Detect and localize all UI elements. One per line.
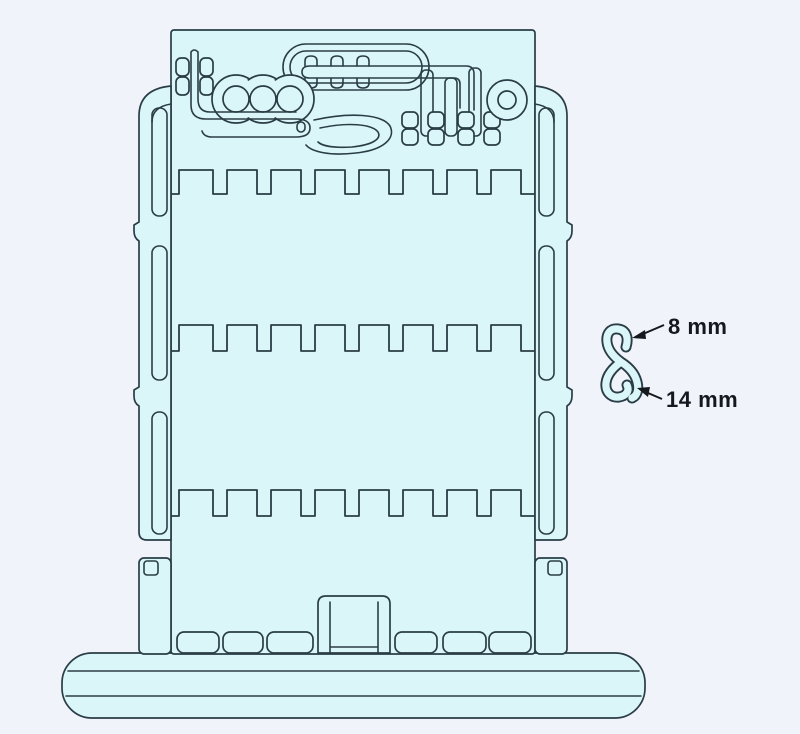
left-side-rail: [134, 86, 171, 654]
rack-assembly-diagram: 8 mm 14 mm: [0, 0, 800, 734]
annotation-14mm: 14 mm: [637, 387, 738, 412]
leader-line-8mm: [643, 325, 664, 334]
right-side-rail: [535, 86, 572, 654]
base-slab: [62, 653, 645, 718]
leader-line-14mm: [648, 393, 662, 399]
washer-ring: [487, 80, 527, 120]
spring-clip: [606, 329, 638, 398]
label-14mm: 14 mm: [666, 387, 738, 412]
diagram-stage: 8 mm 14 mm: [0, 0, 800, 734]
label-8mm: 8 mm: [668, 314, 727, 339]
arrowhead-8mm: [632, 330, 646, 339]
annotation-8mm: 8 mm: [632, 314, 727, 339]
triple-ring-handle: [212, 75, 314, 123]
center-bracket: [318, 596, 390, 653]
